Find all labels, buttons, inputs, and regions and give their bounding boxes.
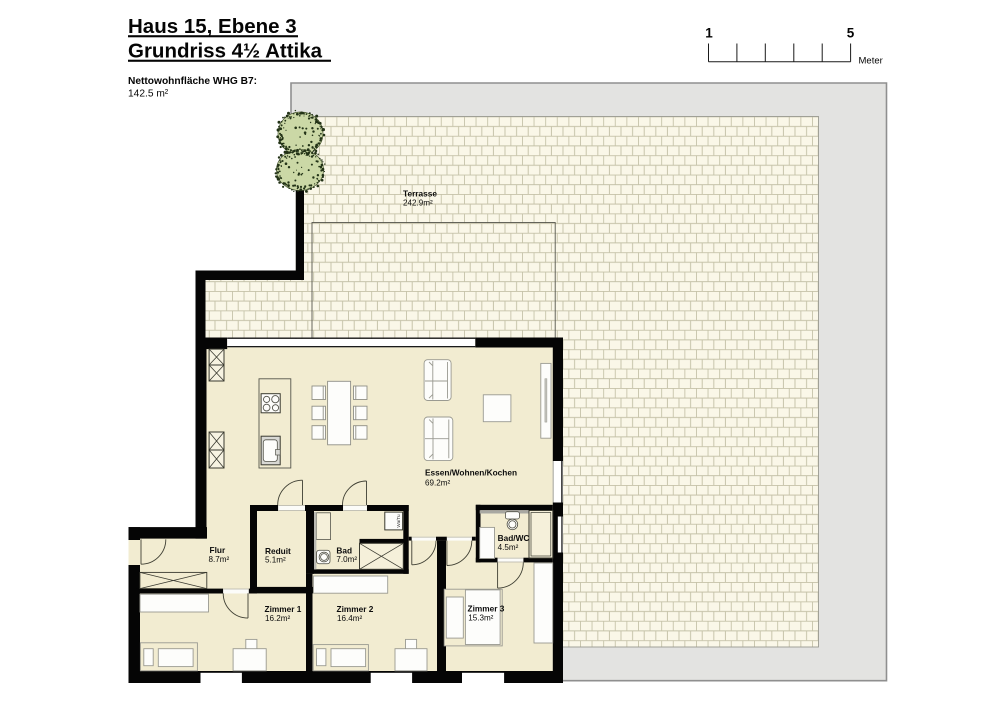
svg-text:Zimmer 3: Zimmer 3: [468, 604, 505, 614]
svg-text:Flur: Flur: [210, 545, 226, 555]
svg-text:Reduit: Reduit: [265, 546, 291, 556]
svg-text:16.2m²: 16.2m²: [265, 614, 290, 623]
svg-text:Bad/WC: Bad/WC: [498, 533, 530, 543]
svg-text:Essen/Wohnen/Kochen: Essen/Wohnen/Kochen: [425, 468, 517, 478]
svg-text:Wa/Tu: Wa/Tu: [396, 514, 401, 528]
svg-text:Haus 15, Ebene 3: Haus 15, Ebene 3: [128, 15, 297, 38]
svg-text:242.9m²: 242.9m²: [403, 199, 433, 208]
svg-text:142.5 m²: 142.5 m²: [128, 89, 169, 100]
svg-text:7.0m²: 7.0m²: [336, 555, 357, 564]
svg-text:Grundriss 4½ Attika: Grundriss 4½ Attika: [128, 40, 323, 63]
svg-text:8.7m²: 8.7m²: [209, 555, 230, 564]
svg-text:16.4m²: 16.4m²: [337, 614, 362, 623]
svg-text:5.1m²: 5.1m²: [265, 556, 286, 565]
svg-text:Nettowohnfläche WHG B7:: Nettowohnfläche WHG B7:: [128, 76, 257, 87]
svg-text:15.3m²: 15.3m²: [468, 614, 493, 623]
svg-text:Terrasse: Terrasse: [403, 189, 437, 199]
svg-text:Zimmer 2: Zimmer 2: [337, 604, 374, 614]
svg-text:5: 5: [847, 26, 855, 41]
svg-text:4.5m²: 4.5m²: [498, 543, 519, 552]
svg-text:Bad: Bad: [336, 546, 352, 556]
svg-text:Zimmer 1: Zimmer 1: [265, 604, 302, 614]
svg-text:Meter: Meter: [859, 56, 883, 67]
svg-text:1: 1: [705, 26, 713, 41]
svg-text:69.2m²: 69.2m²: [425, 479, 450, 488]
